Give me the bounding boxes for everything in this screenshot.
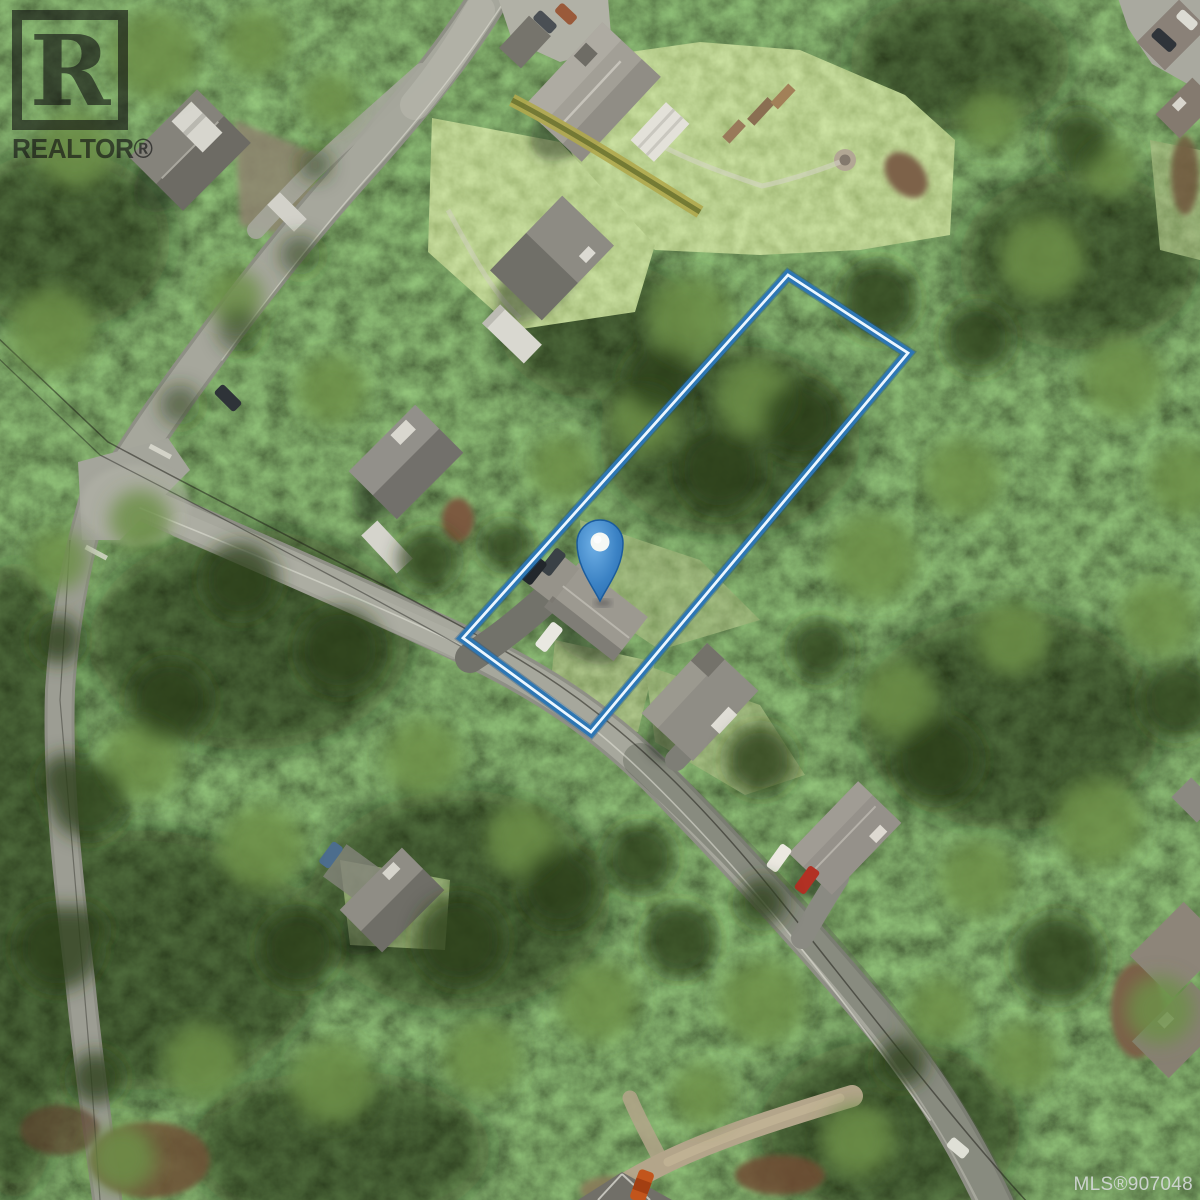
aerial-photo (0, 0, 1200, 1200)
realtor-wordmark: REALTOR® (12, 133, 152, 165)
realtor-logo-r: R (30, 27, 111, 116)
mls-number: MLS®907048 (1074, 1174, 1193, 1196)
realtor-watermark: R REALTOR® (12, 10, 161, 165)
realtor-logo-box: R (12, 10, 128, 130)
listing-photo: R REALTOR® MLS®907048 (0, 0, 1200, 1200)
